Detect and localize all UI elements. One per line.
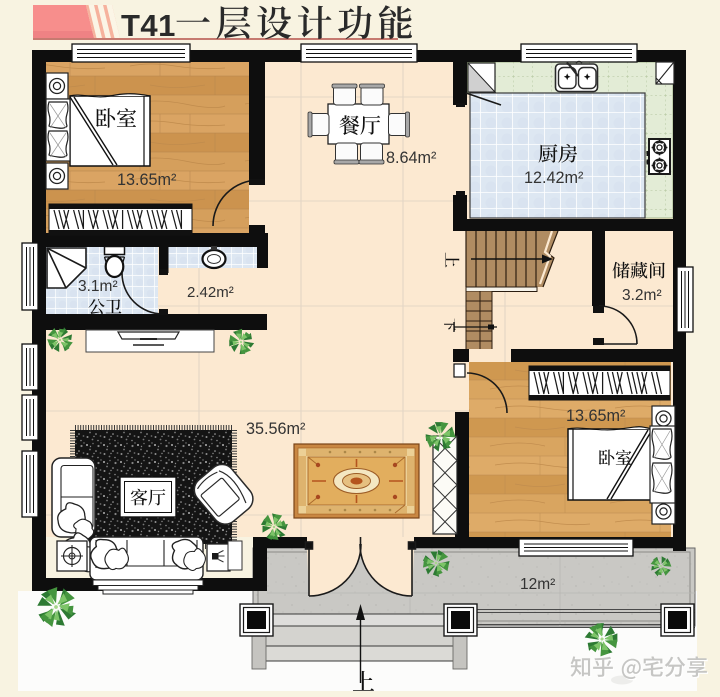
svg-text:35.56m²: 35.56m²	[246, 420, 306, 438]
svg-text:3.2m²: 3.2m²	[622, 287, 662, 304]
svg-text:3.1m²: 3.1m²	[78, 278, 118, 295]
svg-text:2.42m²: 2.42m²	[187, 284, 234, 301]
svg-text:13.65m²: 13.65m²	[566, 407, 626, 425]
svg-text:12.42m²: 12.42m²	[524, 169, 584, 187]
svg-text:8.64m²: 8.64m²	[386, 149, 437, 167]
svg-text:T41: T41	[121, 8, 176, 43]
svg-text:12m²: 12m²	[520, 576, 555, 593]
svg-text:13.65m²: 13.65m²	[117, 171, 177, 189]
